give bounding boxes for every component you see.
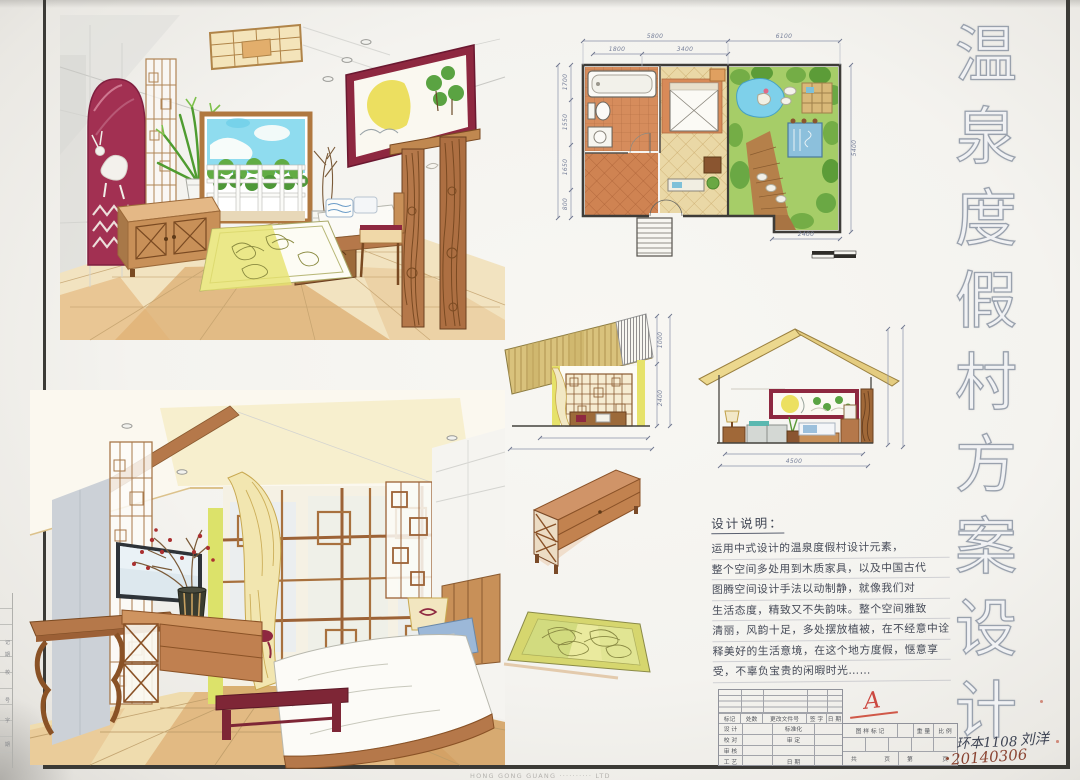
dim-label: 4500 — [786, 458, 802, 465]
tb-total-label: 共 — [851, 754, 857, 763]
notes-line: 释美好的生活意境，在这个地方度假，惬意享 — [712, 639, 950, 662]
dim-label: 2400 — [798, 231, 814, 238]
tb-signature-cell — [743, 735, 773, 746]
left-wall — [52, 478, 110, 745]
calligraphy-char: 度 — [938, 178, 1034, 260]
tb-role-cell: 设 计 — [719, 724, 743, 735]
strip-cell-label: 期 — [5, 743, 10, 748]
tb-signature-cell — [815, 746, 842, 757]
left-margin-strip: 记 期 校 号 字 期 — [0, 593, 13, 768]
window — [202, 114, 310, 221]
tb-signature-cell — [743, 724, 773, 735]
tb-header-cell: 标记 — [719, 714, 741, 724]
calligraphy-title: 温 泉 度 假 村 方 案 设 计 — [938, 14, 1034, 766]
tb-signature-cell — [815, 735, 842, 746]
tb-role-cell: 审 定 — [773, 735, 815, 746]
calligraphy-char: 假 — [938, 260, 1034, 342]
hot-spring-pool — [788, 119, 822, 158]
tb-weight-label: 重 量 — [914, 724, 934, 738]
gable-roof — [699, 329, 899, 386]
tv-stand-plan — [710, 69, 725, 81]
tb-role-cell: 工 艺 — [719, 756, 743, 766]
bedroom-rendering — [30, 390, 505, 765]
bench-plan — [668, 179, 704, 191]
rug-sketch — [498, 598, 658, 703]
calligraphy-char: 温 — [938, 14, 1034, 96]
room-interior — [552, 360, 645, 426]
tb-empty-cell — [912, 738, 934, 752]
scale-bar — [812, 251, 856, 258]
ink-dot — [946, 757, 949, 760]
sideboard-sketch — [528, 462, 653, 580]
dim-label: 800 — [562, 198, 569, 210]
calligraphy-char: 案 — [938, 506, 1034, 588]
tb-empty-cell — [866, 738, 889, 752]
tb-role-cell: 校 对 — [719, 735, 743, 746]
dim-label: 3400 — [677, 46, 693, 53]
presentation-board: 记 期 校 号 字 期 — [0, 0, 1080, 780]
tb-role-cell — [773, 746, 815, 757]
calligraphy-char: 村 — [938, 342, 1034, 424]
tb-empty-cell — [843, 738, 866, 752]
toilet — [588, 102, 610, 120]
notes-line: 受，不辜负宝贵的闲暇时光…… — [713, 660, 951, 683]
wood-ceiling-light — [210, 25, 302, 69]
bird-figurine — [426, 163, 438, 168]
strip-cell-label: 字 — [5, 719, 10, 724]
tb-header-cell: 签 字 — [807, 714, 827, 724]
notes-title: 设计说明： — [711, 512, 784, 534]
elevation-section-a: 1000 2400 — [500, 308, 675, 460]
revision-grid — [719, 690, 842, 713]
tb-mark-label: 图 样 标 记 — [843, 724, 898, 738]
strip-cell-label: 记 — [5, 641, 10, 646]
notes-line: 整个空间多处用到木质家具，以及中国古代 — [712, 557, 950, 580]
pergola — [802, 83, 832, 113]
photo-top-shade — [0, 0, 1080, 8]
tb-page-label: 页 — [884, 754, 890, 763]
notes-line: 生活态度，精致又不失韵味。整个空间雅致 — [712, 598, 950, 621]
elevation-section-b: 4500 — [695, 325, 910, 470]
tb-role-cell: 日 期 — [773, 756, 815, 766]
plant-plan — [707, 177, 719, 189]
bathtub — [588, 71, 656, 97]
tb-sheet-label: 第 — [907, 754, 913, 763]
red-mark: A — [863, 687, 882, 715]
table-plan — [704, 157, 721, 173]
dim-label: 1000 — [657, 332, 664, 348]
floor-plan: 5800 6100 1800 3400 1700 1550 1650 800 5… — [550, 25, 910, 270]
tb-signature-cell — [815, 724, 842, 735]
tb-header-cell: 处数 — [741, 714, 763, 724]
dim-label: 1550 — [562, 114, 569, 130]
tb-role-cell: 标准化 — [773, 724, 815, 735]
garden-terrace — [727, 65, 842, 230]
tb-signature-cell — [743, 746, 773, 757]
tb-signature-cell — [743, 756, 773, 766]
dim-label: 5800 — [647, 33, 663, 40]
dim-label: 1650 — [562, 159, 569, 175]
tb-signature-cell — [815, 756, 842, 766]
tb-empty-cell — [898, 724, 914, 738]
strip-cell-label: 期 — [5, 653, 10, 658]
dim-label: 6100 — [776, 33, 792, 40]
tb-header-cell: 更改文件号 — [763, 714, 807, 724]
tb-scale-label: 比 例 — [934, 724, 956, 738]
paper-speck — [1040, 700, 1043, 703]
strip-cell-label: 校 — [5, 671, 10, 676]
dim-label: 1800 — [609, 46, 625, 53]
bed-plan — [662, 79, 722, 133]
notes-line: 清丽，风韵十足，多处摆放植被，在不经意中诠 — [712, 619, 950, 642]
notes-line: 图腾空间设计手法以动制静，就像我们对 — [712, 578, 950, 601]
entry-floor — [585, 153, 658, 216]
sink — [588, 127, 612, 147]
dim-label: 1700 — [562, 74, 569, 90]
stairs — [637, 218, 672, 256]
calligraphy-char: 方 — [938, 424, 1034, 506]
strip-cell-label: 号 — [5, 699, 10, 704]
notes-line: 运用中式设计的温泉度假村设计元素， — [711, 537, 949, 560]
corner-lattice-screen — [386, 482, 432, 598]
title-block: 标记 处数 更改文件号 签 字 日 期 设 计 标准化 校 对 审 定 审 核 — [718, 689, 958, 766]
dim-label: 2400 — [657, 390, 664, 406]
paper-speck — [1056, 740, 1059, 743]
design-notes: 设计说明： 运用中式设计的温泉度假村设计元素， 整个空间多处用到木质家具，以及中… — [711, 511, 951, 683]
tb-role-cell: 审 核 — [719, 746, 743, 757]
calligraphy-char: 泉 — [938, 96, 1034, 178]
watermark: HONG GONG GUANG ·········· LTD — [470, 772, 970, 780]
sheet-border-right — [1066, 0, 1070, 768]
living-room-rendering — [60, 15, 505, 340]
calligraphy-char: 设 — [938, 588, 1034, 670]
tb-empty-cell — [889, 738, 912, 752]
dim-label: 5400 — [851, 140, 858, 156]
tb-header-cell: 日 期 — [827, 714, 842, 724]
